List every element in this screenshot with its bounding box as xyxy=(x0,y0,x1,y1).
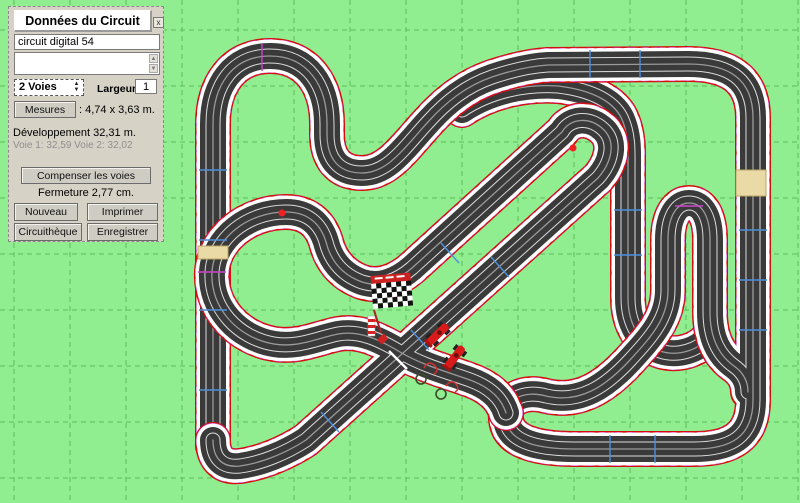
scroll-up-icon[interactable]: ▲ xyxy=(149,54,158,63)
sensor-dot xyxy=(570,145,577,152)
scroll-down-icon[interactable]: ▼ xyxy=(149,64,158,73)
measures-value: : 4,74 x 3,63 m. xyxy=(79,104,155,116)
notes-textarea[interactable]: ▲ ▼ xyxy=(14,52,160,75)
lanes-spinner[interactable]: 2 Voies ▲ ▼ xyxy=(14,79,84,96)
library-button[interactable]: Circuithèque xyxy=(14,223,82,241)
checkered-flag xyxy=(371,281,413,309)
new-button[interactable]: Nouveau xyxy=(14,203,78,221)
lane-lengths: Voie 1: 32,59 Voie 2: 32,02 xyxy=(13,140,133,151)
compensate-lanes-button[interactable]: Compenser les voies xyxy=(21,167,151,184)
sensor-dot xyxy=(279,210,286,217)
spin-loop-mark xyxy=(436,389,446,399)
pole-stripe xyxy=(368,331,375,334)
width-input[interactable] xyxy=(135,79,157,94)
closure-gap: Fermeture 2,77 cm. xyxy=(9,187,163,199)
close-icon[interactable]: x xyxy=(153,17,164,28)
pole-stripe xyxy=(368,319,375,322)
circuit-data-panel: Données du Circuit x ▲ ▼ 2 Voies ▲ ▼ Lar… xyxy=(8,6,164,242)
application-window: Données du Circuit x ▲ ▼ 2 Voies ▲ ▼ Lar… xyxy=(0,0,800,503)
lanes-down-icon[interactable]: ▼ xyxy=(72,87,81,94)
development-length: Développement 32,31 m. xyxy=(13,127,136,139)
print-button[interactable]: Imprimer xyxy=(87,203,158,221)
lanes-value: 2 Voies xyxy=(19,81,57,93)
panel-title: Données du Circuit xyxy=(14,10,152,32)
circuit-name-input[interactable] xyxy=(14,34,160,50)
lane-switch-piece[interactable] xyxy=(736,170,766,196)
connection-piece[interactable] xyxy=(198,246,228,259)
pole-stripe xyxy=(368,325,375,328)
finish-flag-icon xyxy=(370,273,413,309)
width-label: Largeur xyxy=(97,83,136,95)
measures-button[interactable]: Mesures xyxy=(14,101,76,118)
save-button[interactable]: Enregistrer xyxy=(87,223,158,241)
track-layout[interactable] xyxy=(212,56,753,466)
